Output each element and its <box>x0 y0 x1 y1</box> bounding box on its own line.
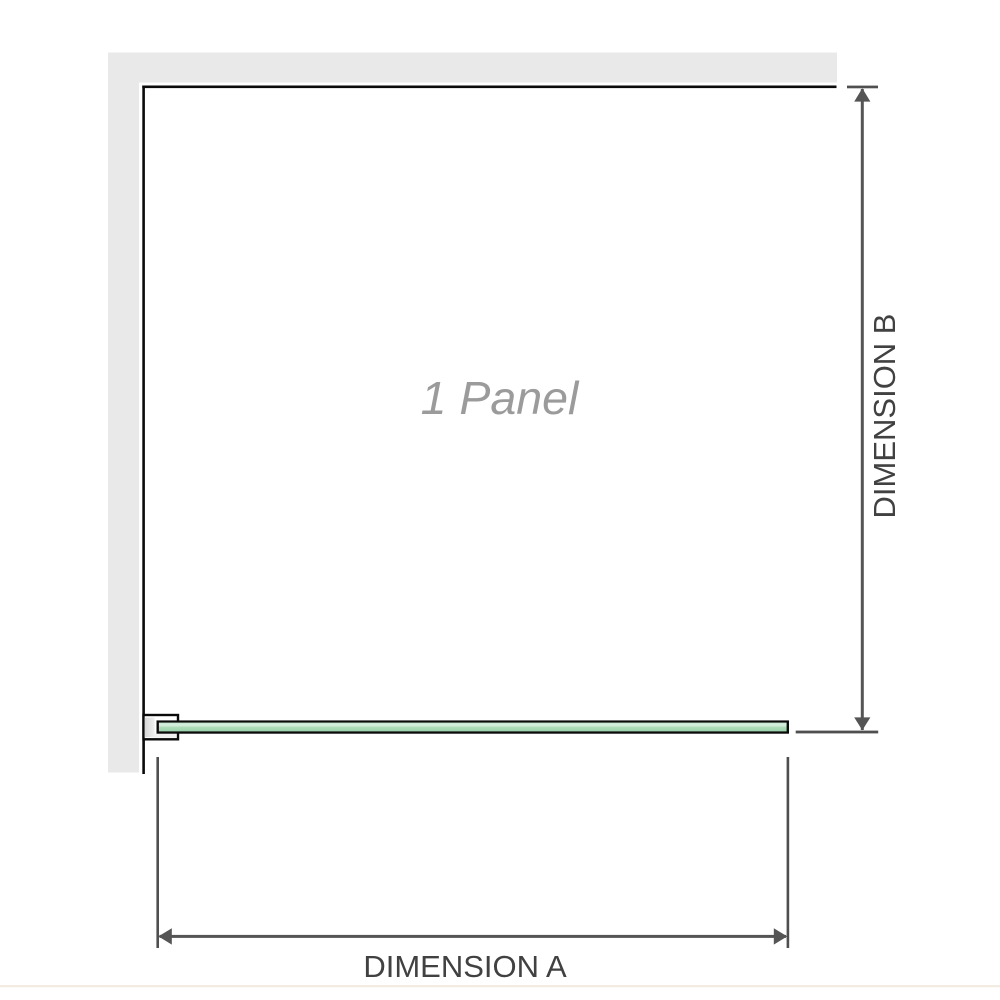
svg-text:1 Panel: 1 Panel <box>421 372 580 424</box>
svg-text:DIMENSION B: DIMENSION B <box>867 314 902 519</box>
svg-text:DIMENSION A: DIMENSION A <box>363 949 567 984</box>
